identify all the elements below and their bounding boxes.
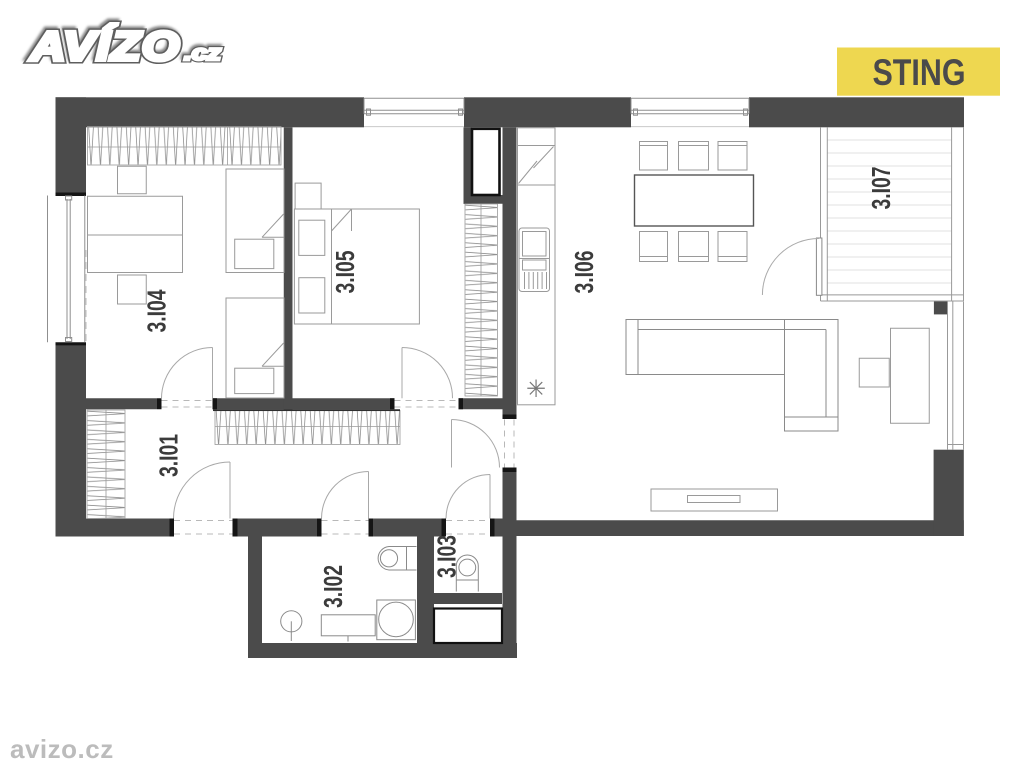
svg-text:STING: STING <box>873 52 966 93</box>
svg-text:3.I05: 3.I05 <box>332 251 360 294</box>
svg-text:3.I02: 3.I02 <box>320 565 348 608</box>
svg-text:3.I01: 3.I01 <box>156 434 184 477</box>
svg-text:3.I04: 3.I04 <box>144 289 172 333</box>
svg-text:3.I07: 3.I07 <box>868 167 896 210</box>
svg-text:3.I03: 3.I03 <box>434 535 462 578</box>
svg-text:✳: ✳ <box>526 376 546 403</box>
svg-text:AVÍZO: AVÍZO <box>29 23 180 69</box>
svg-text:avizo.cz: avizo.cz <box>10 734 114 764</box>
svg-text:3.I06: 3.I06 <box>571 251 599 294</box>
svg-text:.cz: .cz <box>184 41 221 65</box>
